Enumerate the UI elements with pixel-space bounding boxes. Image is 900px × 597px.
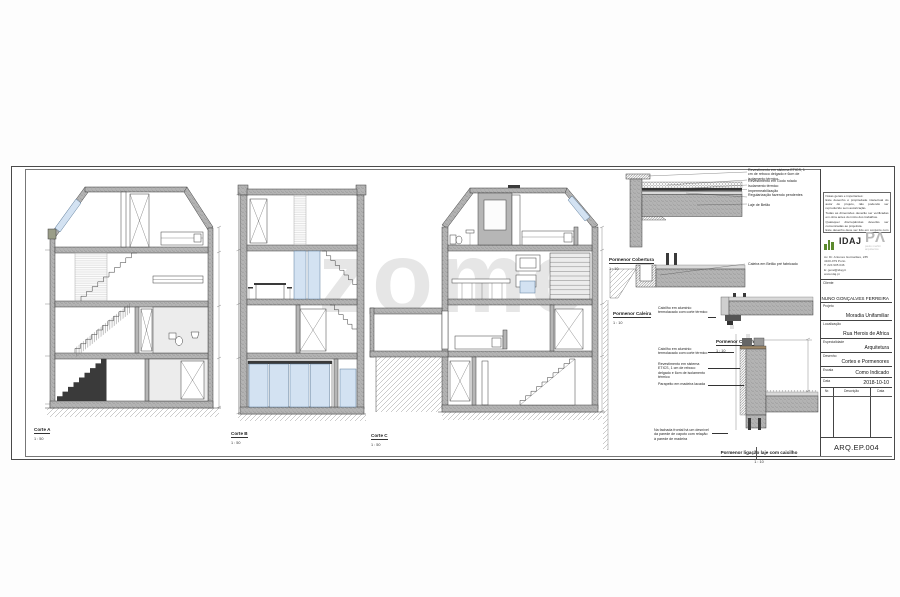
corte-c-label: Corte C 1 : 50 [371, 423, 388, 448]
leader-line [708, 317, 716, 318]
drawing-sheet-page: zome [0, 0, 900, 597]
general-notes: Notas gerais e importantes: Este desenho… [823, 192, 891, 233]
field-cliente: Cliente NUNO GONÇALVES FERREIRA [821, 279, 892, 303]
annotation: Laje de Betão [748, 203, 806, 207]
idaj-logo: IDAJ [824, 232, 861, 252]
sheet-number: ARQ.EP.004 [821, 437, 892, 457]
corte-a-drawing [45, 182, 225, 420]
leader-line [712, 433, 728, 434]
annotation: Parapeito em madeira lacada [658, 382, 708, 386]
corte-b-label: Corte B 1 : 50 [231, 421, 248, 446]
pormenor-caixilho-drawing [713, 293, 813, 329]
pormenor-ligacao-label: Pormenor ligação laje com caixilho 1 : 1… [700, 440, 818, 465]
field-especialidade: Especialidade Arquitetura [821, 338, 892, 353]
title-block: Notas gerais e importantes: Este desenho… [820, 169, 892, 456]
pormenor-caleira-label: Pormenor Caleira 1 : 10 [613, 301, 651, 326]
pa-logo: PΛ paulo merlini arquitectos [865, 230, 885, 252]
office-address: Av. Dr. Antunes Guimarães, 235 4100-079 … [824, 255, 868, 276]
pormenor-cobertura-drawing [622, 172, 747, 247]
leader-line [708, 385, 744, 386]
corte-b-drawing [238, 183, 366, 423]
annotation: Revestimento em sistema ETICS, 1 cm de r… [658, 362, 708, 380]
leader-line [708, 368, 740, 369]
pormenor-ligacao-drawing [700, 334, 818, 434]
annotation: Regularização fazendo pendentes [748, 193, 806, 197]
corte-c-drawing [370, 183, 605, 428]
ligacao-dimensions [764, 338, 812, 392]
terrain-hatch-strip [602, 300, 610, 450]
corte-a-label: Corte A 1 : 50 [34, 417, 50, 442]
annotation: Caixilho em alumínio termolacado com cor… [658, 347, 708, 356]
field-localizacao: Localização Rua Herois de Africa [821, 320, 892, 339]
annotation: Caleira em Betão pré fabricado [748, 262, 803, 266]
corte-a-interior [57, 192, 208, 401]
leader-line [708, 352, 734, 353]
annotation: Revestimento em Godo rolado [748, 179, 806, 183]
idaj-logo-icon [824, 232, 835, 250]
field-desenho: Desenho Cortes e Pormenores [821, 352, 892, 367]
pa-logo-glyph: PΛ [865, 230, 885, 245]
fold-mark [756, 447, 757, 460]
annotation: Caixilho em alumínio termolacado com cor… [658, 306, 708, 315]
field-projeto: Projeto Moradia Unifamiliar [821, 302, 892, 321]
revision-table: Nr. Descrição Data [821, 387, 892, 438]
pormenor-caleira-drawing [610, 253, 745, 298]
